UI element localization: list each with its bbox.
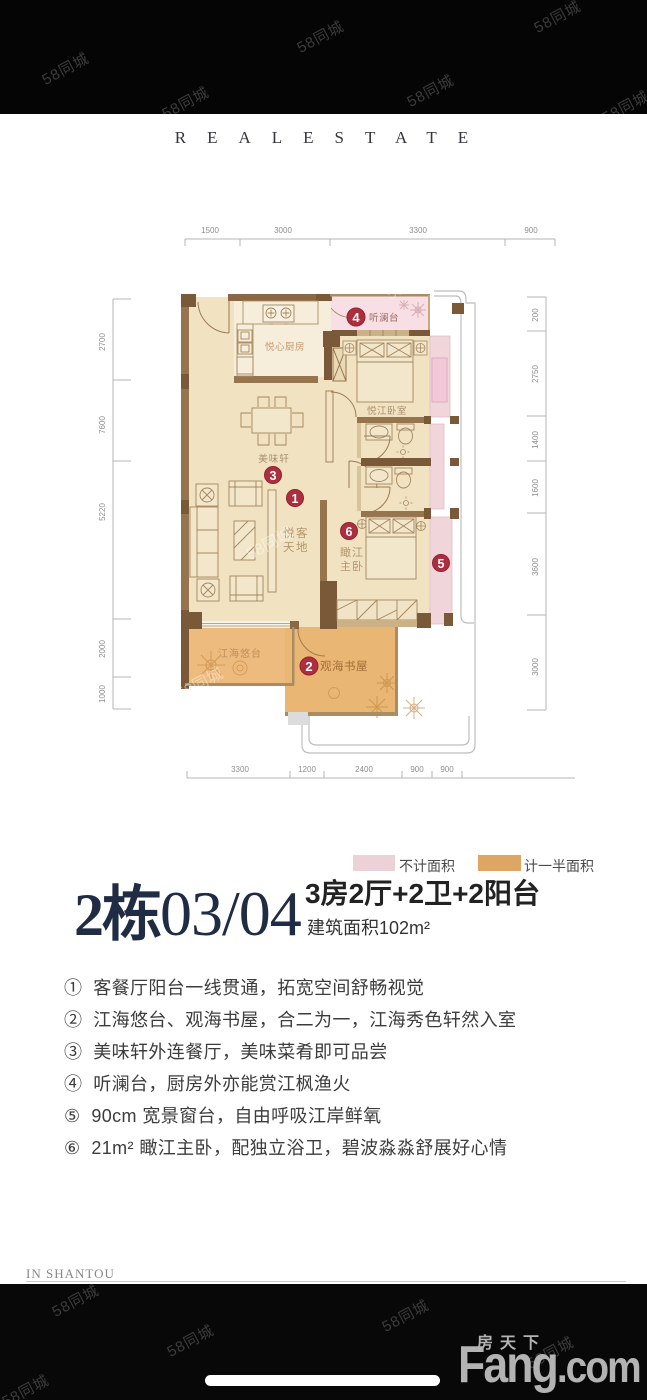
svg-text:江海悠台: 江海悠台 xyxy=(218,647,262,660)
svg-text:观海书屋: 观海书屋 xyxy=(320,659,368,673)
svg-text:2400: 2400 xyxy=(355,765,373,774)
svg-text:3300: 3300 xyxy=(409,226,427,235)
svg-text:6: 6 xyxy=(346,525,353,539)
svg-text:900: 900 xyxy=(410,765,424,774)
svg-text:主卧: 主卧 xyxy=(340,560,364,573)
svg-text:美味轩: 美味轩 xyxy=(258,453,290,465)
svg-text:200: 200 xyxy=(531,308,540,322)
svg-text:1: 1 xyxy=(292,492,299,506)
svg-text:悦心厨房: 悦心厨房 xyxy=(265,341,305,353)
svg-text:3: 3 xyxy=(270,469,277,483)
svg-text:3300: 3300 xyxy=(231,765,249,774)
svg-text:2: 2 xyxy=(305,659,312,674)
svg-text:1000: 1000 xyxy=(98,685,107,703)
svg-text:1200: 1200 xyxy=(298,765,316,774)
svg-text:4: 4 xyxy=(352,310,360,325)
svg-text:3000: 3000 xyxy=(274,226,292,235)
svg-text:5: 5 xyxy=(438,557,445,571)
svg-text:900: 900 xyxy=(524,226,538,235)
svg-text:2700: 2700 xyxy=(98,333,107,351)
svg-text:3000: 3000 xyxy=(531,658,540,676)
svg-text:2000: 2000 xyxy=(98,640,107,658)
svg-text:听澜台: 听澜台 xyxy=(369,312,399,324)
svg-text:1600: 1600 xyxy=(531,479,540,497)
svg-text:2750: 2750 xyxy=(531,365,540,383)
svg-text:5220: 5220 xyxy=(98,503,107,521)
svg-text:7600: 7600 xyxy=(98,416,107,434)
svg-text:悦江卧室: 悦江卧室 xyxy=(367,405,407,417)
svg-text:3600: 3600 xyxy=(531,558,540,576)
svg-text:1500: 1500 xyxy=(201,226,219,235)
svg-text:1400: 1400 xyxy=(531,431,540,449)
svg-text:瞰江: 瞰江 xyxy=(340,545,364,559)
svg-text:900: 900 xyxy=(440,765,454,774)
